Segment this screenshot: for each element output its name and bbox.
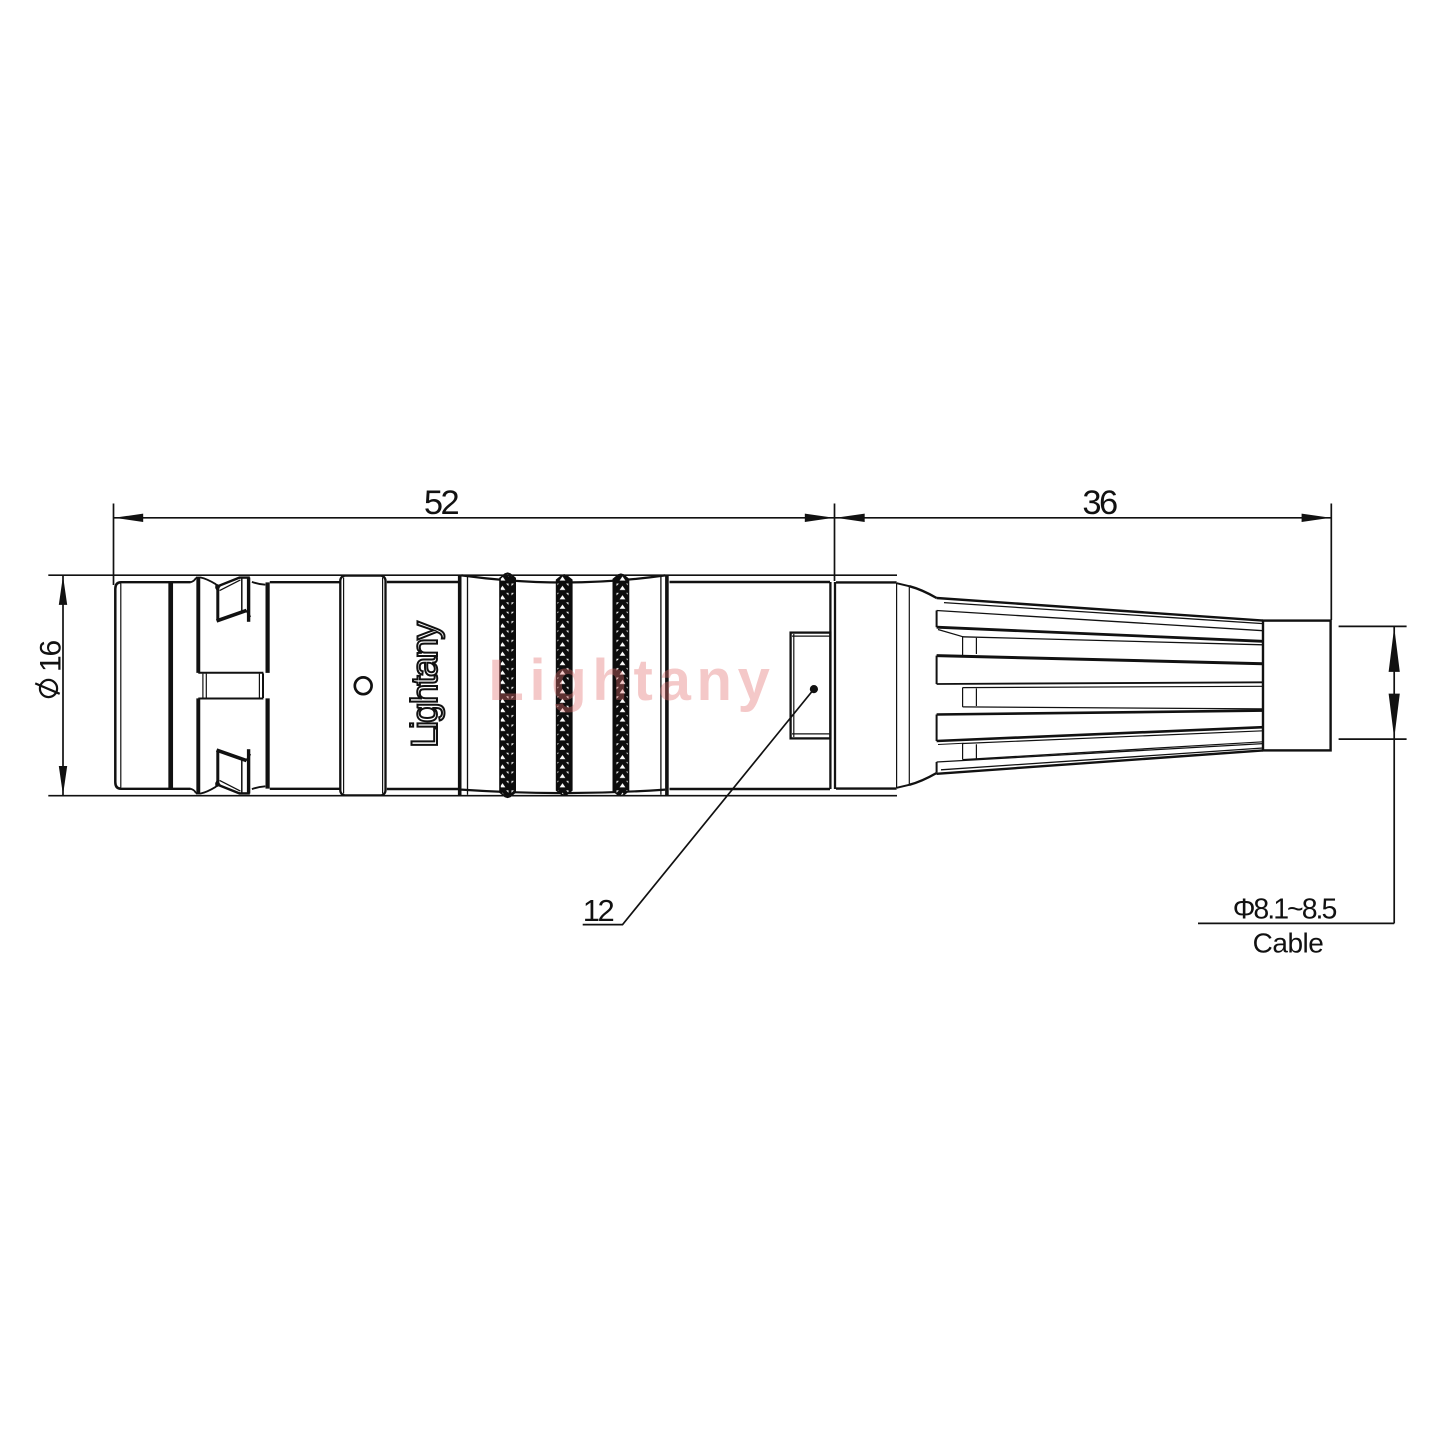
svg-text:Cable: Cable: [1253, 928, 1324, 959]
svg-text:12: 12: [583, 893, 614, 928]
svg-text:Φ8.1~8.5: Φ8.1~8.5: [1233, 894, 1337, 926]
svg-text:Lightany: Lightany: [488, 648, 775, 713]
svg-text:Lightany: Lightany: [404, 621, 445, 748]
svg-text:16: 16: [35, 641, 68, 672]
svg-text:36: 36: [1082, 484, 1117, 522]
svg-text:52: 52: [424, 484, 459, 522]
